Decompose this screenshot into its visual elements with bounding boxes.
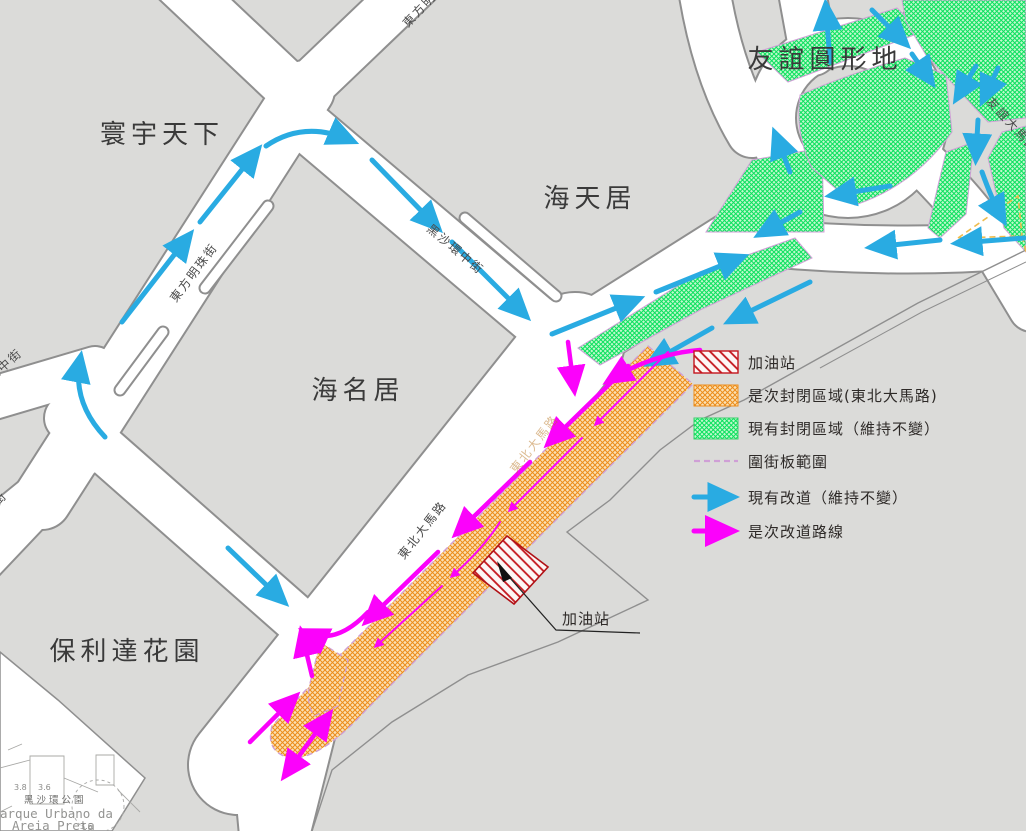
park-name-cn: 黑沙環公園	[24, 795, 87, 806]
legend-label-gas-station: 加油站	[748, 354, 796, 372]
map-canvas: 加油站 寰宇天下 海天居 友誼圓形地 海名居 保利達花園 東方明珠街 黑沙環中街…	[0, 0, 1026, 831]
label-hoi-tin: 海天居	[543, 184, 636, 214]
park-elevation-a: 3.8	[14, 783, 27, 792]
label-polytec: 保利達花園	[49, 637, 204, 667]
park-elevation-c: 3.6	[80, 822, 93, 831]
legend-label-existing-diversion: 現有改道（維持不變）	[748, 489, 908, 507]
legend-label-hoarding: 圍街板範圍	[748, 453, 828, 471]
legend-swatch-existing-closed	[694, 418, 738, 439]
label-hoi-meng: 海名居	[311, 376, 404, 406]
label-roundabout: 友誼圓形地	[747, 45, 902, 75]
legend-label-existing-closed: 現有封閉區域（維持不變）	[748, 420, 940, 438]
legend-label-new-diversion: 是次改道路線	[748, 523, 844, 541]
legend-swatch-new-closed	[694, 385, 738, 406]
legend-swatch-gas-station	[694, 351, 738, 373]
road-closure-map: 加油站 寰宇天下 海天居 友誼圓形地 海名居 保利達花園 東方明珠街 黑沙環中街…	[0, 0, 1026, 831]
legend-label-new-closed: 是次封閉區域(東北大馬路)	[748, 387, 938, 405]
gas-station-callout-label: 加油站	[562, 610, 610, 628]
label-la-cite: 寰宇天下	[100, 120, 224, 150]
park-elevation-b: 3.6	[38, 783, 51, 792]
